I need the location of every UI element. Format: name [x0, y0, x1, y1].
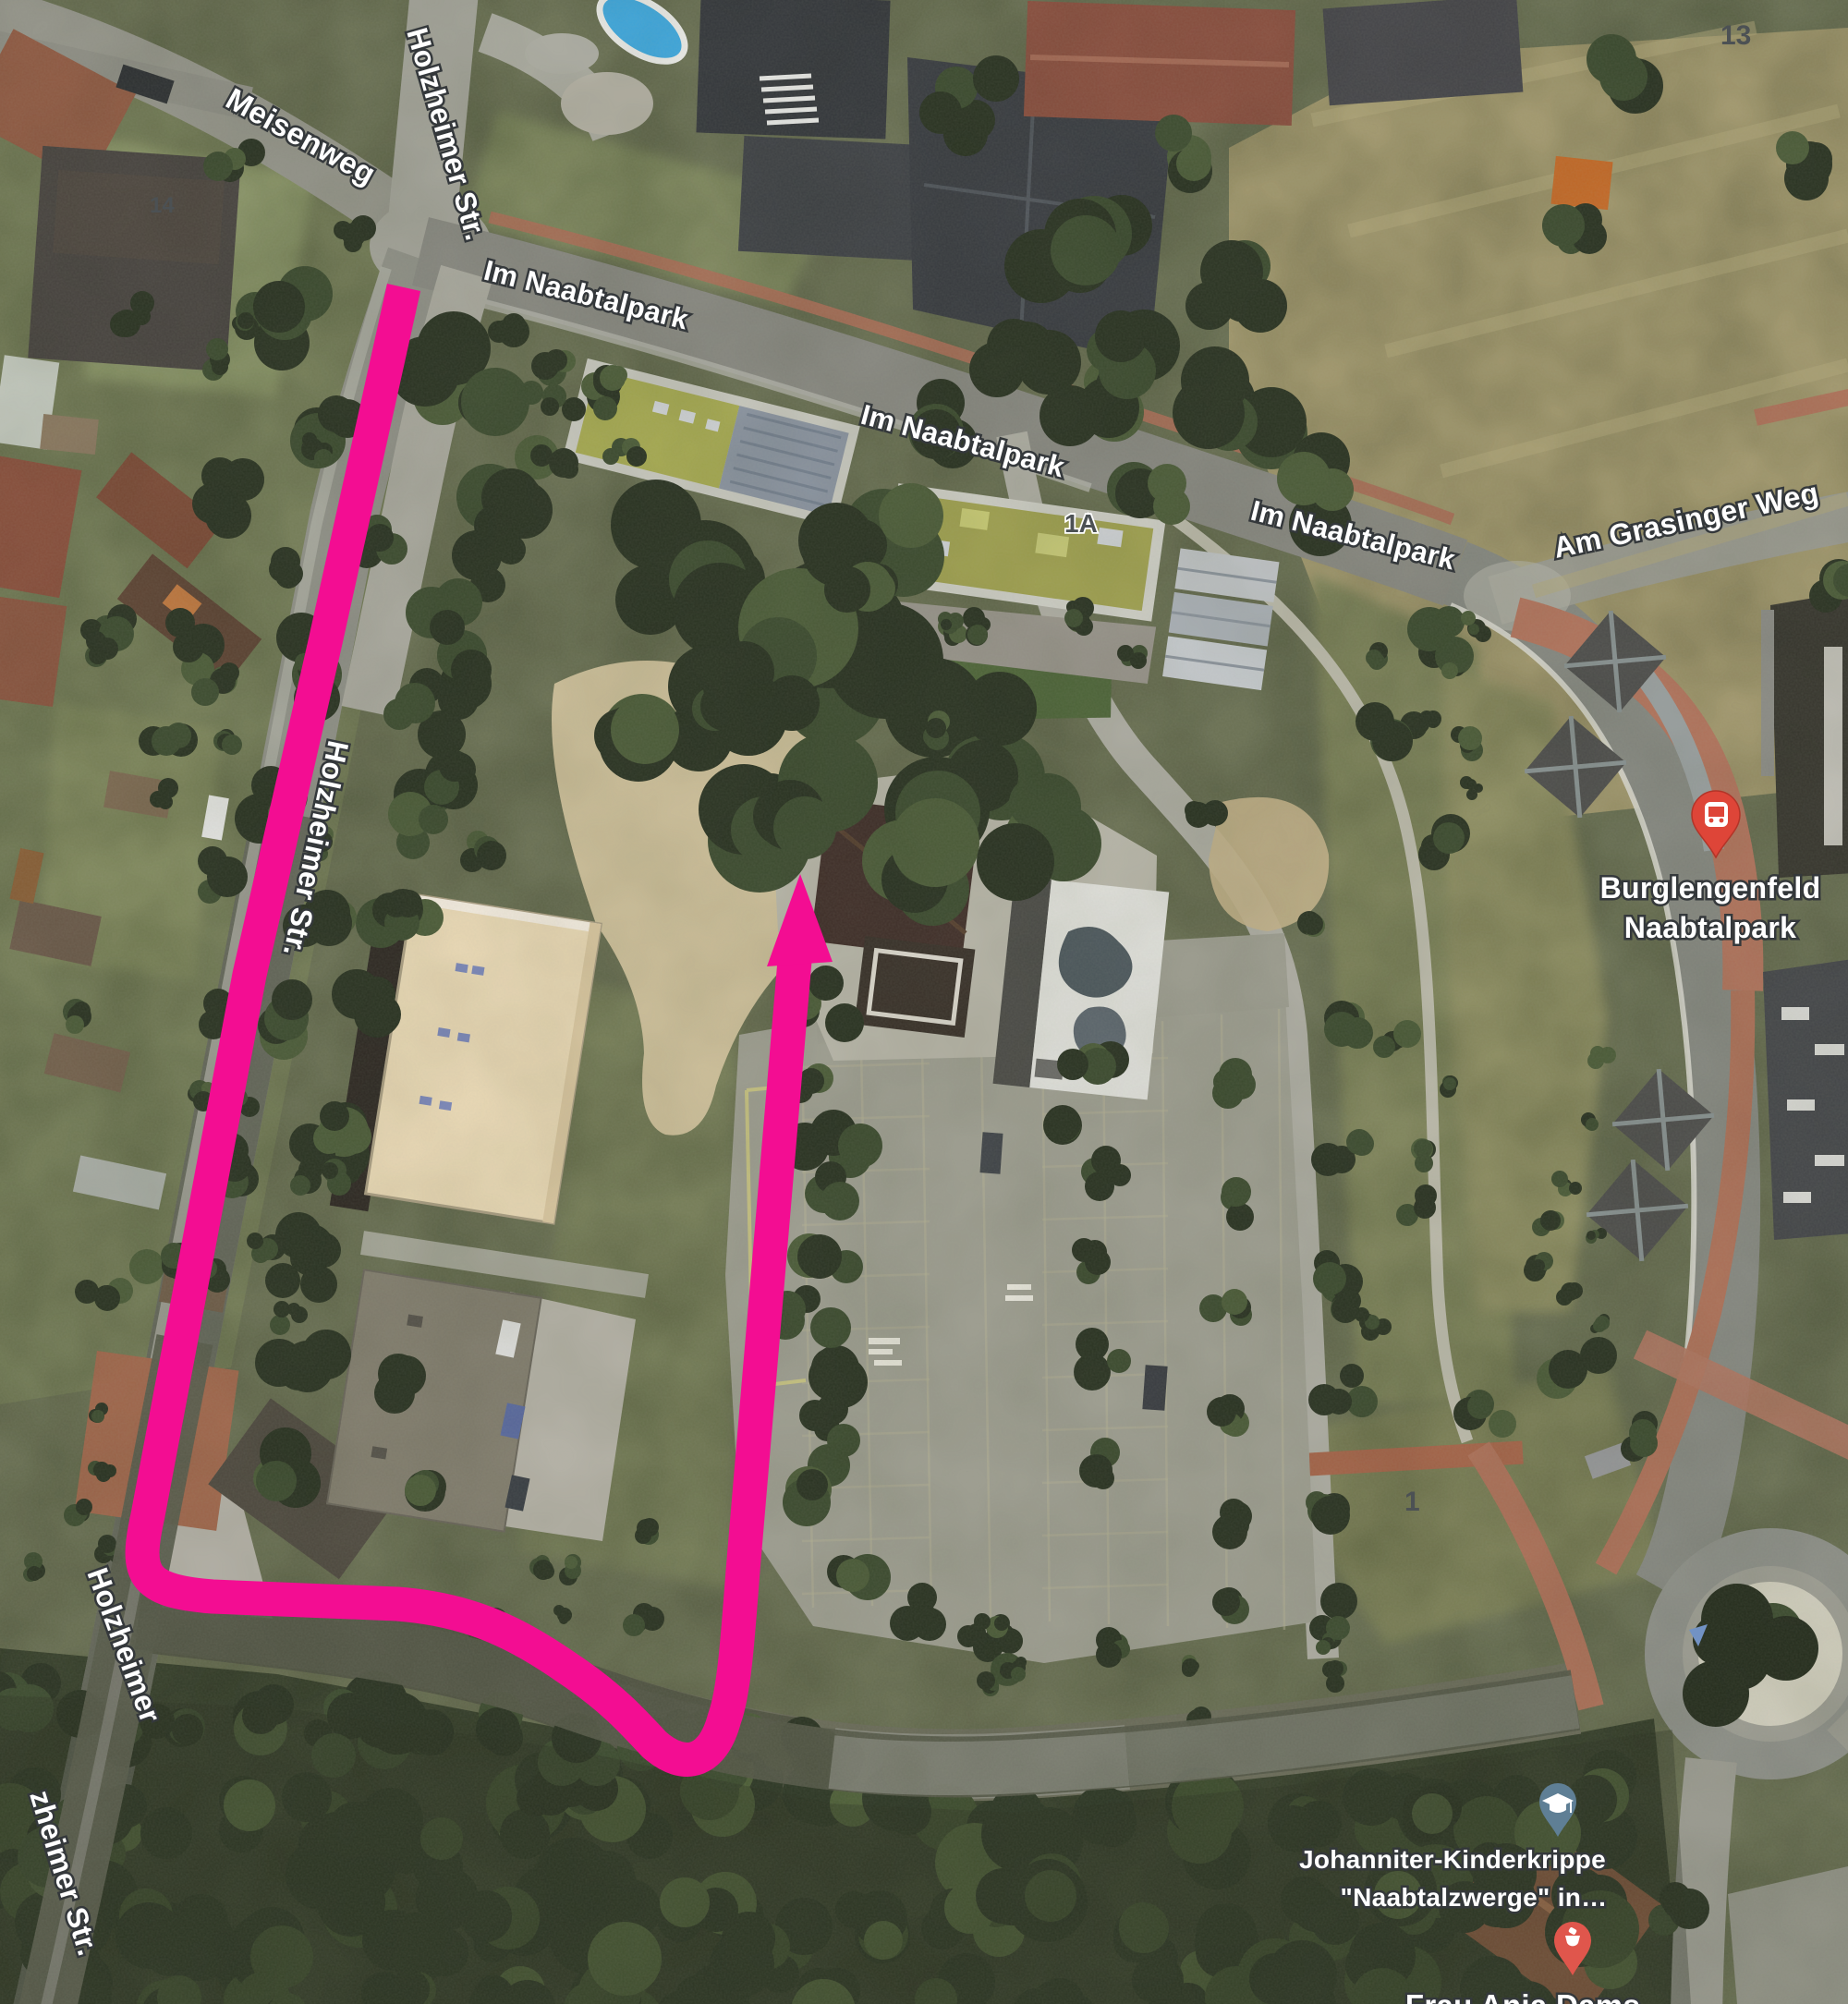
- svg-text:Burglengenfeld: Burglengenfeld: [1600, 871, 1821, 905]
- svg-text:13: 13: [1720, 20, 1751, 51]
- svg-text:Frau Anja Dams: Frau Anja Dams: [1405, 1988, 1640, 2004]
- svg-text:1A: 1A: [1064, 509, 1098, 538]
- svg-text:Naabtalpark: Naabtalpark: [1624, 911, 1797, 944]
- svg-text:14: 14: [150, 193, 175, 218]
- svg-text:1: 1: [1404, 1487, 1420, 1517]
- svg-text:"Naabtalzwerge" in…: "Naabtalzwerge" in…: [1341, 1883, 1608, 1912]
- svg-text:Johanniter-Kinderkrippe: Johanniter-Kinderkrippe: [1299, 1845, 1606, 1874]
